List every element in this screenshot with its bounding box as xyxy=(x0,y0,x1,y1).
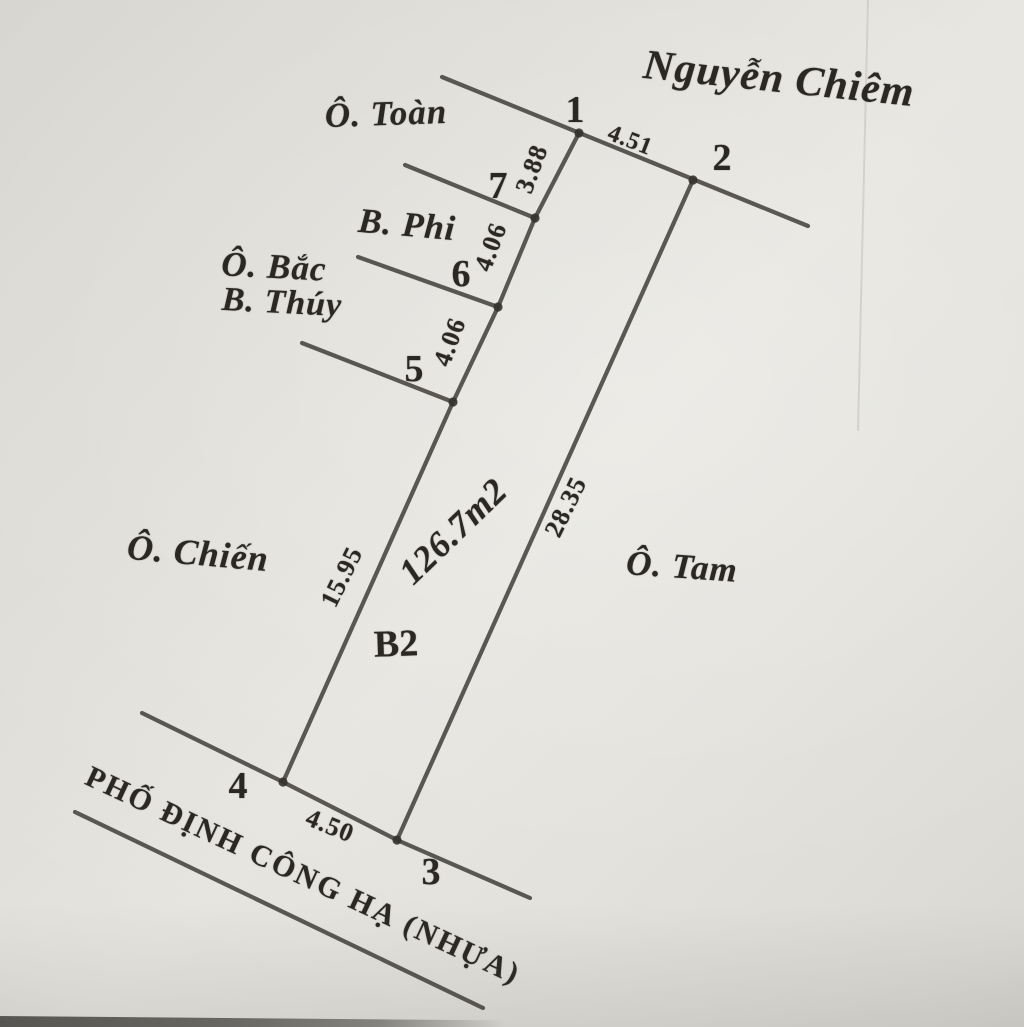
point-label-7: 7 xyxy=(489,164,508,208)
point-label-2: 2 xyxy=(713,136,732,180)
street-edge-far xyxy=(75,812,483,1008)
point-label-6: 6 xyxy=(452,252,471,296)
parcel-right-boundary xyxy=(397,180,693,840)
vertex-6 xyxy=(493,302,502,311)
point-label-1: 1 xyxy=(566,88,585,132)
neighbor-label-thuy: B. Thúy xyxy=(221,281,343,325)
cadastral-sketch: Nguyễn Chiêm Ô. Toàn B. Phi Ô. Bắc B. Th… xyxy=(0,0,1024,1027)
neighbor-label-phi: B. Phi xyxy=(357,201,458,249)
vertex-7 xyxy=(530,213,539,222)
point-label-4: 4 xyxy=(229,764,248,808)
vertex-2 xyxy=(688,175,697,184)
point-label-3: 3 xyxy=(422,850,441,894)
vertex-5 xyxy=(448,397,457,406)
boundary-lines-layer xyxy=(0,0,1024,1027)
point-label-5: 5 xyxy=(405,347,424,391)
neighbor-label-toan: Ô. Toàn xyxy=(324,92,448,136)
neighbor-label-tam: Ô. Tam xyxy=(625,543,739,591)
vertex-4 xyxy=(278,777,287,786)
parcel-code-label: B2 xyxy=(373,621,419,667)
vertex-3 xyxy=(392,835,401,844)
